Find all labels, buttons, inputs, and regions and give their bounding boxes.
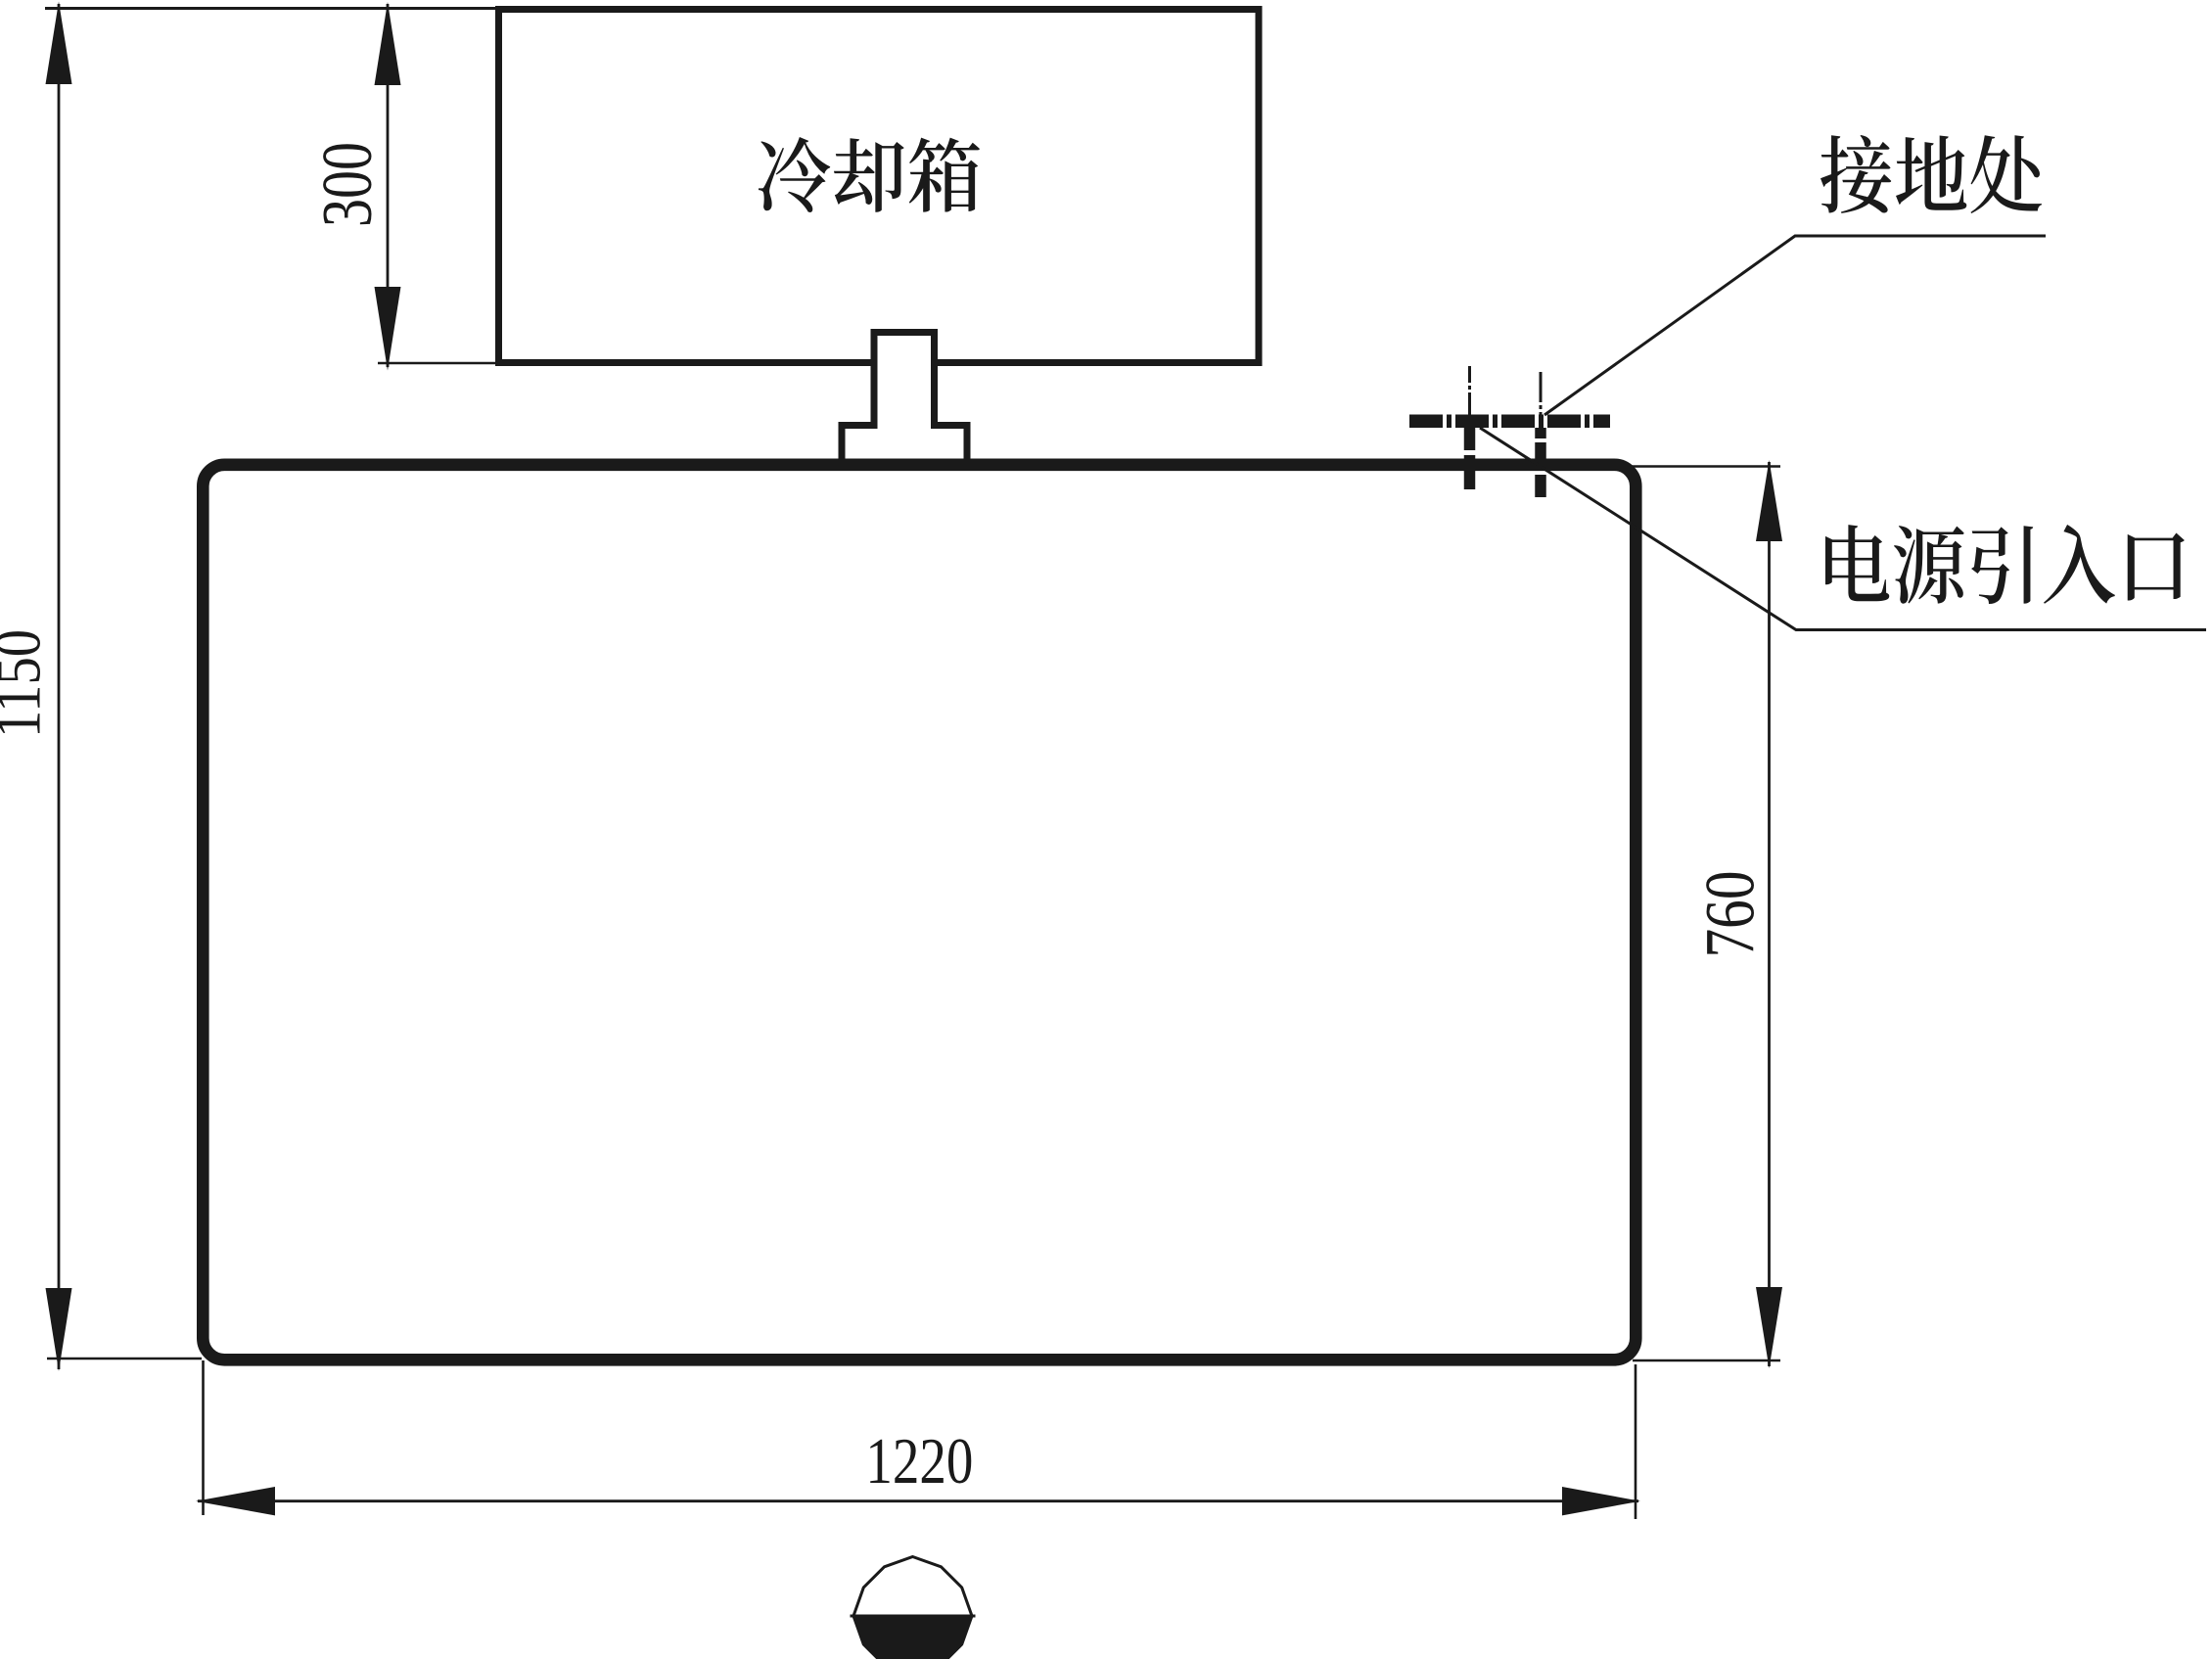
svg-text:1150: 1150 [0,629,55,738]
svg-text:1220: 1220 [865,1425,973,1498]
svg-text:760: 760 [1690,871,1769,958]
svg-text:300: 300 [307,142,387,227]
